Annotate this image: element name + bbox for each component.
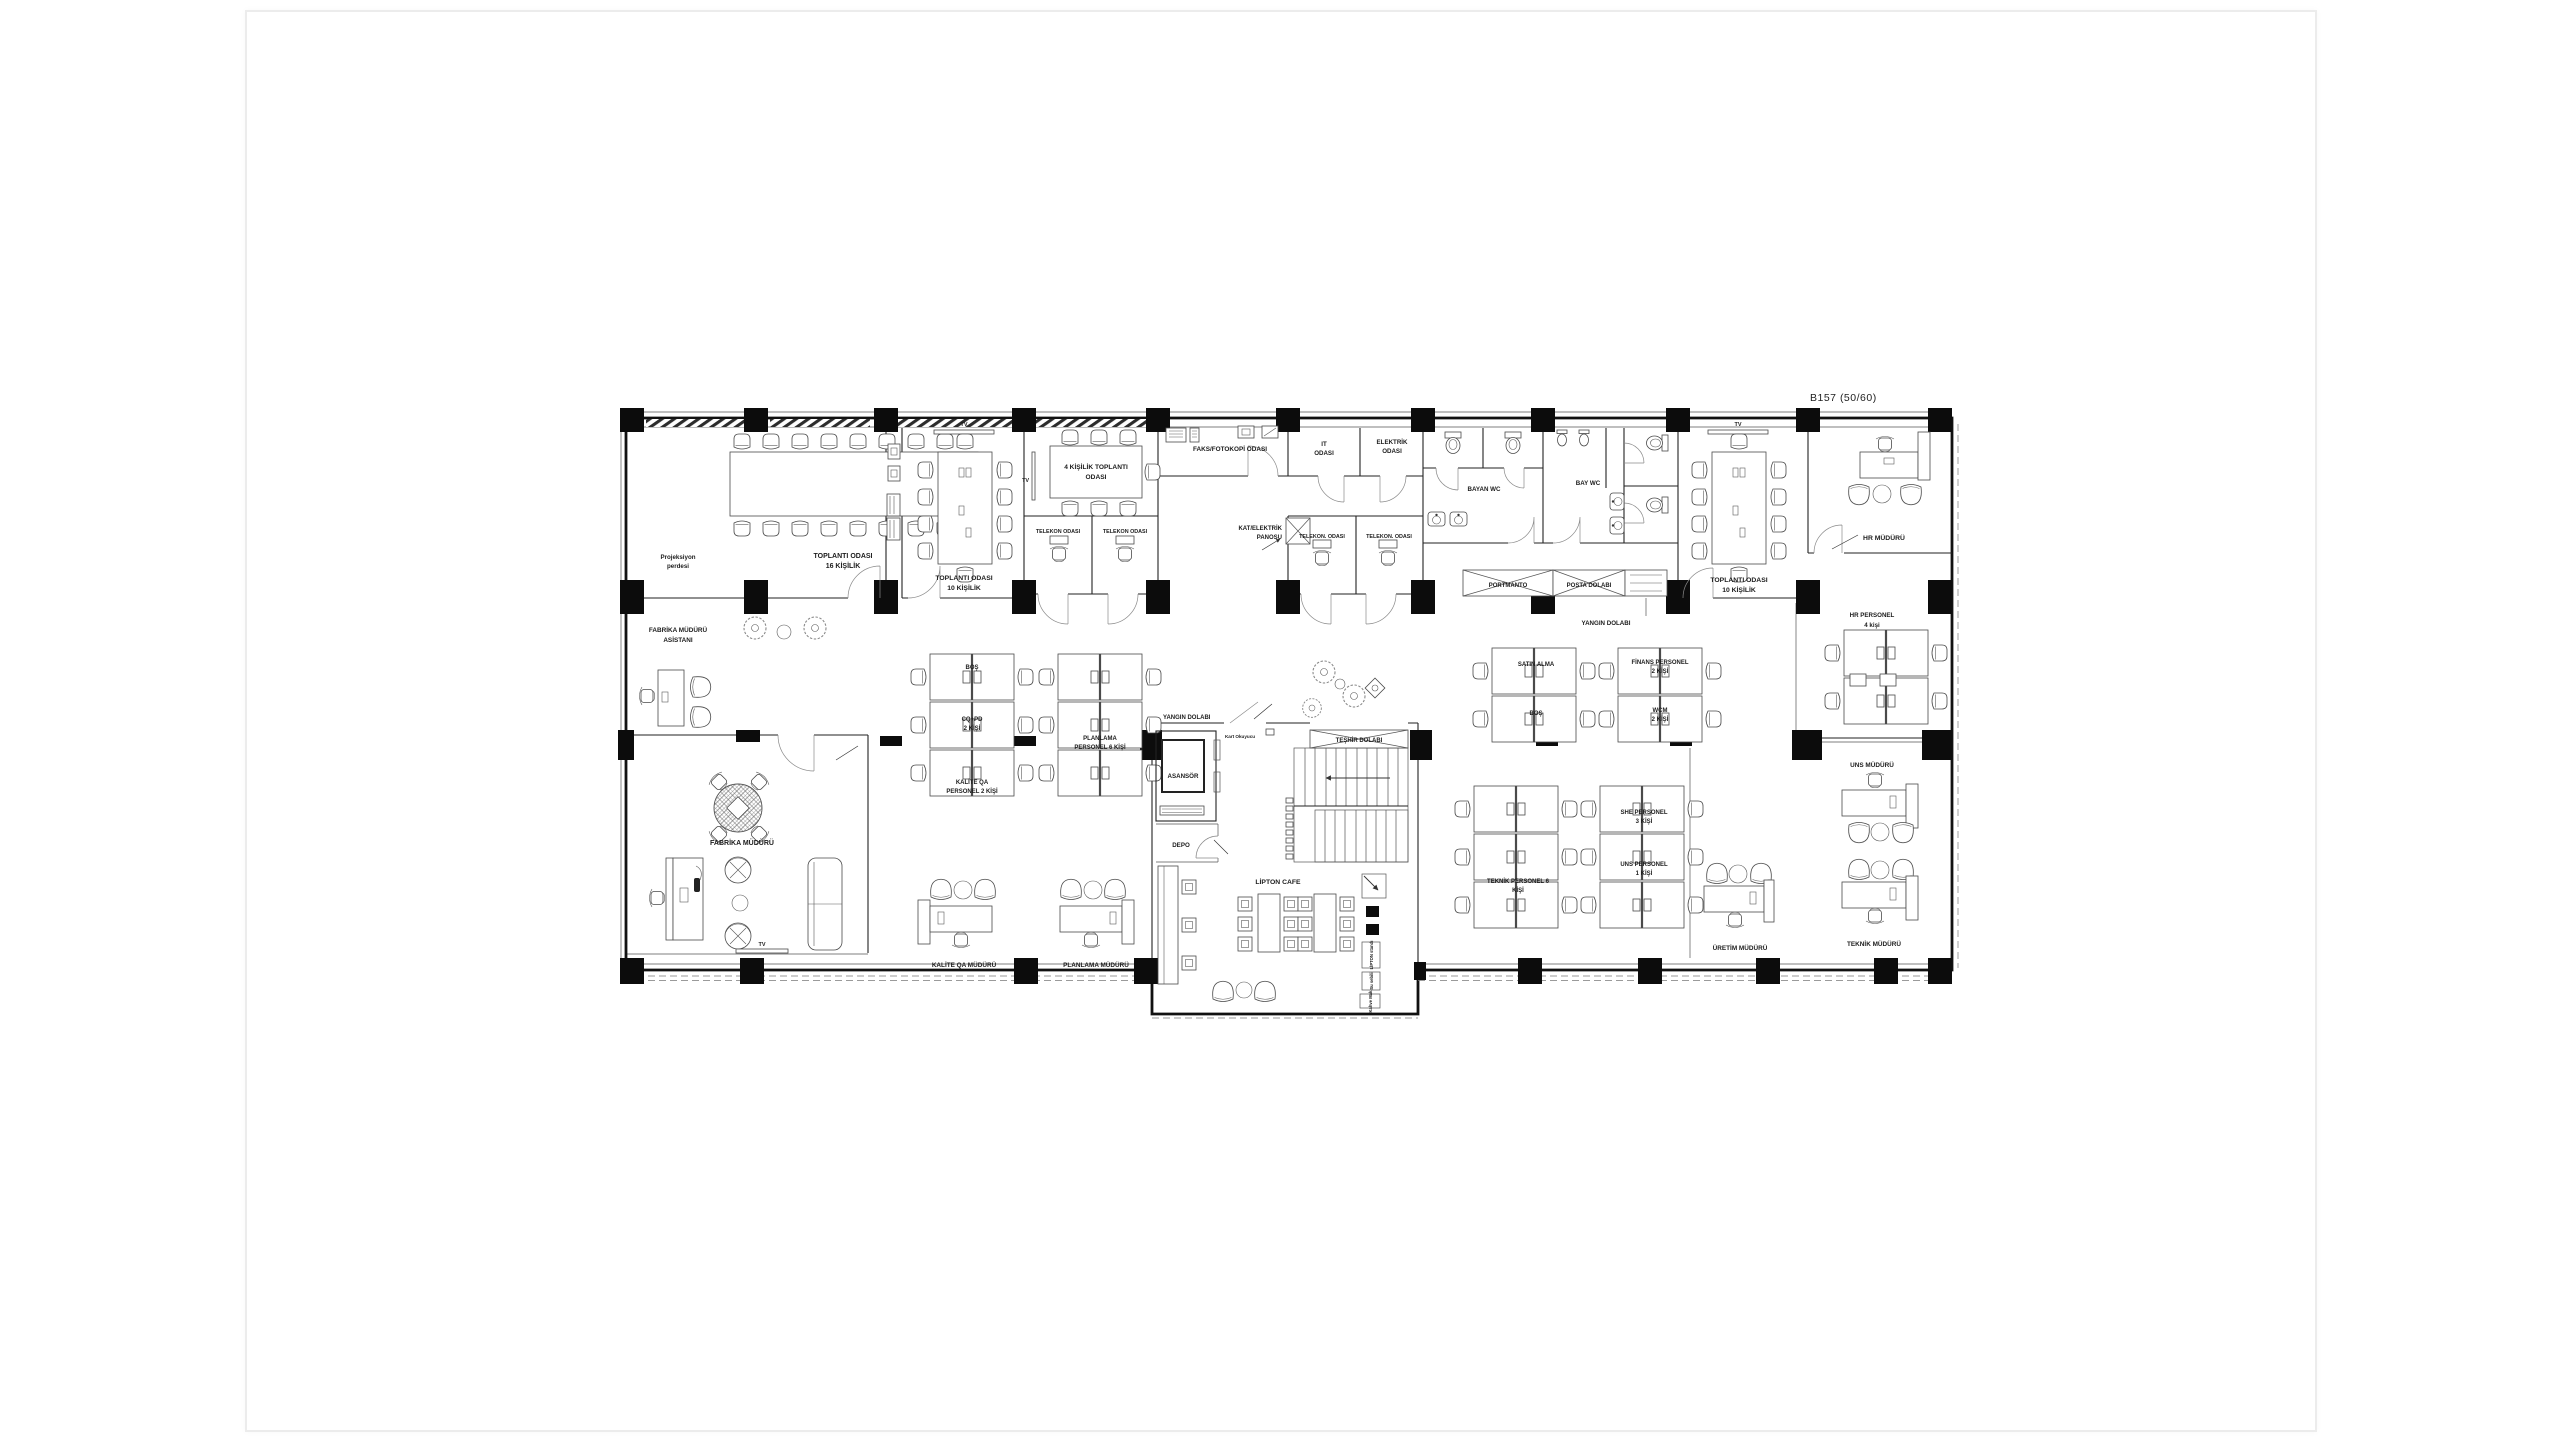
label-telekon-4: TELEKON. ODASI xyxy=(1366,534,1412,540)
factory-manager-assistant-furniture xyxy=(640,670,711,727)
label-asansor: ASANSÖR xyxy=(1168,773,1199,780)
label-kalite-mudur: KALİTE QA MÜDÜRÜ xyxy=(932,960,997,969)
floor-plan: B157 (50/60) Projeksiyon perdesi TOPLANT… xyxy=(618,388,1963,1038)
hr-manager-office-furniture xyxy=(1849,432,1930,505)
label-cafe-box-3: Kahve Mak. xyxy=(1368,989,1373,1012)
label-teknik-mudur: TEKNİK MÜDÜRÜ xyxy=(1847,939,1901,948)
label-m4-tv: TV xyxy=(1022,478,1029,484)
label-meeting16-2: 16 KİŞİLİK xyxy=(826,562,861,570)
label-it-2: ODASI xyxy=(1314,450,1334,457)
label-hr-mudur: HR MÜDÜRÜ xyxy=(1863,533,1905,542)
card-reader-box xyxy=(1266,729,1274,735)
lobby-cabinets xyxy=(1463,570,1667,616)
label-m4-1: 4 KİŞİLİK TOPLANTI xyxy=(1064,463,1128,471)
label-teknik-pers-2: KİŞİ xyxy=(1512,887,1524,894)
label-pano-1: KAT/ELEKTRİK xyxy=(1238,525,1282,532)
label-bos-2: BOŞ xyxy=(1529,711,1542,717)
label-kalite-pers-1: KALİTE QA xyxy=(956,779,989,786)
label-bayan-wc: BAYAN WC xyxy=(1468,486,1501,493)
label-kart-okuyucu: Kart Okuyucu xyxy=(1225,734,1255,739)
label-fab-asistan-2: ASİSTANI xyxy=(663,635,693,644)
lipton-cafe-furniture xyxy=(1158,866,1386,1008)
label-she-2: 3 KİŞİ xyxy=(1636,818,1653,825)
label-uretim-mudur: ÜRETİM MÜDÜRÜ xyxy=(1713,943,1768,952)
open-office-left xyxy=(911,654,1161,948)
label-telekon-1: TELEKON ODASI xyxy=(1036,529,1081,535)
label-depo: DEPO xyxy=(1172,842,1190,849)
window-hatch xyxy=(646,419,744,427)
label-bay-wc: BAY WC xyxy=(1576,480,1601,487)
label-projeksiyon-2: perdesi xyxy=(667,563,689,570)
core-plants xyxy=(1303,661,1385,717)
open-office-right xyxy=(1455,648,1774,928)
screenshot-canvas: B157 (50/60) Projeksiyon perdesi TOPLANT… xyxy=(0,0,2560,1440)
label-cafe-box-1: LİPTON standı xyxy=(1369,941,1374,970)
label-planlama-mudur: PLANLAMA MÜDÜRÜ xyxy=(1063,960,1129,969)
label-m10l-tv: TV xyxy=(960,422,967,428)
label-elektrik-1: ELEKTRİK xyxy=(1377,439,1408,446)
label-cafe-box-2: Su sebili xyxy=(1369,972,1374,989)
label-m10l-1: TOPLANTI ODASI xyxy=(935,575,992,582)
label-yangin-1: YANGIN DOLABI xyxy=(1582,620,1631,627)
label-hr-pers-2: 4 kişi xyxy=(1864,622,1880,629)
label-cafe: LİPTON CAFE xyxy=(1255,878,1301,886)
label-cqpd-1: CQ+PD xyxy=(962,717,984,723)
factory-manager-office-furniture xyxy=(650,770,843,953)
label-m10r-2: 10 KİŞİLİK xyxy=(1722,586,1756,594)
label-uns-pers-1: UNS PERSONEL xyxy=(1620,862,1668,868)
label-cqpd-2: 2 KİŞİ xyxy=(964,725,981,732)
label-projeksiyon-1: Projeksiyon xyxy=(660,554,695,561)
label-m10r-tv: TV xyxy=(1734,422,1741,428)
label-teknik-pers-1: TEKNİK PERSONEL 6 xyxy=(1487,878,1550,885)
label-planlama-pers-1: PLANLAMA xyxy=(1083,736,1117,742)
staircase xyxy=(1286,748,1408,862)
lobby-plants xyxy=(744,617,826,639)
sheet-title: B157 (50/60) xyxy=(1810,392,1877,404)
label-meeting16-1: TOPLANTI ODASI xyxy=(814,553,873,560)
label-kalite-pers-2: PERSONEL 2 KİŞİ xyxy=(946,788,998,795)
label-hr-pers-1: HR PERSONEL xyxy=(1850,612,1895,619)
floor-electrical-panel xyxy=(1286,518,1310,544)
label-m10l-2: 10 KİŞİLİK xyxy=(947,584,981,592)
telekon-rooms-furniture xyxy=(1050,536,1397,566)
label-fab-asistan-1: FABRİKA MÜDÜRÜ xyxy=(649,625,708,634)
label-m4-2: ODASI xyxy=(1086,474,1107,481)
label-uns-pers-2: 1 KİŞİ xyxy=(1636,870,1653,877)
label-m10r-1: TOPLANTI ODASI xyxy=(1710,577,1767,584)
teknik-manager-furniture xyxy=(1842,859,1918,923)
label-pano-2: PANOSU xyxy=(1257,535,1282,541)
label-fab-tv: TV xyxy=(758,942,765,948)
label-planlama-pers-2: PERSONEL 6 KİŞİ xyxy=(1074,744,1126,751)
label-finans-2: 2 KİŞİ xyxy=(1652,668,1669,675)
label-she-1: SHE PERSONEL xyxy=(1620,810,1667,816)
label-wcm-2: 2 KİŞİ xyxy=(1652,716,1669,723)
label-telekon-3: TELEKON. ODASI xyxy=(1299,534,1345,540)
label-portmanto: PORTMANTO xyxy=(1489,583,1528,589)
label-fab-mudur: FABRİKA MÜDÜRÜ xyxy=(710,838,774,847)
meeting-room-10-right-furniture xyxy=(1692,430,1786,582)
label-finans-1: FİNANS PERSONEL xyxy=(1631,659,1688,666)
label-faks: FAKS/FOTOKOPİ ODASI xyxy=(1193,444,1267,453)
label-telekon-2: TELEKON ODASI xyxy=(1103,529,1148,535)
label-satin-alma: SATIN ALMA xyxy=(1518,662,1555,668)
meeting-room-4-furniture xyxy=(1032,430,1160,516)
label-wcm-1: WCM xyxy=(1653,708,1668,714)
hr-personnel-cluster xyxy=(1825,630,1947,724)
label-yangin-2: YANGIN DOLABI xyxy=(1163,715,1211,721)
label-teshir: TEŞHİR DOLABI xyxy=(1336,737,1383,744)
uns-manager-furniture xyxy=(1842,773,1918,843)
fax-copy-room-equipment xyxy=(1166,426,1278,442)
label-elektrik-2: ODASI xyxy=(1382,448,1402,455)
label-uns-mudur: UNS MÜDÜRÜ xyxy=(1850,760,1894,769)
mens-wc-fixtures xyxy=(1557,430,1668,534)
label-it-1: IT xyxy=(1321,441,1327,448)
label-bos-1: BOŞ xyxy=(965,665,978,671)
label-posta: POSTA DOLABI xyxy=(1567,583,1612,589)
